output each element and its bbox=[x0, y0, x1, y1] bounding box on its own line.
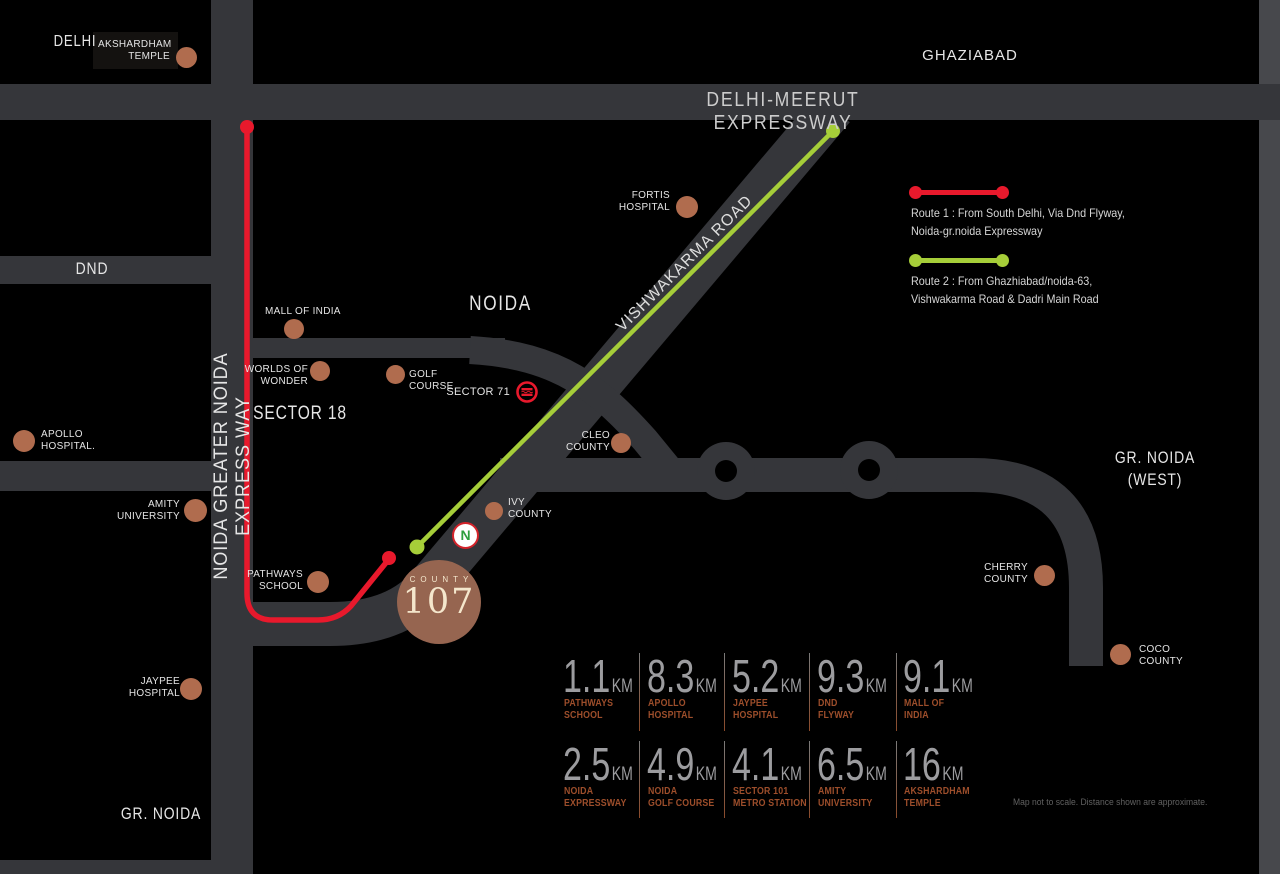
distance-noida-expressway-label: NOIDAEXPRESSWAY bbox=[564, 786, 627, 809]
area-sector18: SECTOR 18 bbox=[249, 403, 351, 425]
landmark-ivy-county: IVY COUNTY bbox=[508, 497, 552, 521]
distance-divider bbox=[896, 653, 897, 731]
distance-divider bbox=[724, 741, 725, 818]
landmark-apollo-hospital: APOLLO HOSPITAL. bbox=[41, 429, 95, 453]
distance-divider bbox=[809, 741, 810, 818]
route2-legend-cap-right bbox=[996, 254, 1009, 267]
distance-pathways: 1.1KM bbox=[563, 655, 657, 698]
landmark-cherry-county: CHERRY COUNTY bbox=[956, 562, 1028, 586]
delhi-meerut-expressway-label: DELHI-MEERUT EXPRESSWAY bbox=[651, 89, 915, 135]
map-edge-road bbox=[1259, 0, 1280, 874]
distance-apollo: 8.3KM bbox=[647, 655, 741, 698]
distance-golf-course: 4.9KM bbox=[647, 743, 741, 786]
county107-logo: COUNTY 107 bbox=[397, 560, 481, 644]
logo-number-text: 107 bbox=[397, 584, 481, 620]
landmark-amity-university: AMITY UNIVERSITY bbox=[108, 499, 180, 523]
route2-end-dot bbox=[410, 540, 425, 555]
distance-golf-course-label: NOIDAGOLF COURSE bbox=[648, 786, 714, 809]
fortis-hospital-dot bbox=[676, 196, 698, 218]
map-disclaimer: Map not to scale. Distance shown are app… bbox=[1013, 797, 1207, 807]
distance-divider bbox=[724, 653, 725, 731]
distance-metro-station-label: SECTOR 101METRO STATION bbox=[733, 786, 807, 809]
route1-legend-line bbox=[913, 190, 1005, 195]
cherry-county-dot bbox=[1034, 565, 1055, 586]
delhi-meerut-expressway-shape bbox=[0, 84, 1280, 120]
gr-noida-west-line1: GR. NOIDA bbox=[1115, 448, 1195, 467]
route2-legend-text: Route 2 : From Ghazhiabad/noida-63, Vish… bbox=[911, 272, 1099, 308]
landmark-pathways-school: PATHWAYS SCHOOL bbox=[231, 569, 303, 593]
distance-akshardham: 16KM bbox=[903, 743, 985, 786]
route1-legend-cap-left bbox=[909, 186, 922, 199]
landmark-fortis-hospital: FORTIS HOSPITAL bbox=[598, 190, 670, 214]
route1-legend-cap-right bbox=[996, 186, 1009, 199]
distance-dnd-label: DNDFLYWAY bbox=[818, 698, 854, 721]
distance-mall-label: MALL OFINDIA bbox=[904, 698, 944, 721]
pathways-school-dot bbox=[307, 571, 329, 593]
bottom-left-road bbox=[0, 860, 211, 874]
mall-of-india-dot bbox=[284, 319, 304, 339]
route2-legend-line bbox=[913, 258, 1005, 263]
distance-akshardham-label: AKSHARDHAMTEMPLE bbox=[904, 786, 970, 809]
landmark-cleo-county: CLEO COUNTY bbox=[548, 430, 610, 454]
distance-amity: 6.5KM bbox=[817, 743, 911, 786]
jaypee-hospital-dot bbox=[180, 678, 202, 700]
distance-noida-expressway: 2.5KM bbox=[563, 743, 657, 786]
route1-end-dot bbox=[382, 551, 396, 565]
route1-legend-text: Route 1 : From South Delhi, Via Dnd Flyw… bbox=[911, 204, 1125, 240]
city-noida: NOIDA bbox=[457, 292, 543, 316]
roundabout-1-center bbox=[715, 460, 737, 482]
location-map: DELHI GHAZIABAD DELHI-MEERUT EXPRESSWAY … bbox=[0, 0, 1280, 874]
city-gr-noida-west: GR. NOIDA (WEST) bbox=[1104, 447, 1206, 491]
golf-course-dot bbox=[386, 365, 405, 384]
coco-county-dot bbox=[1110, 644, 1131, 665]
amity-university-dot bbox=[184, 499, 207, 522]
route1-start-dot bbox=[240, 120, 254, 134]
area-dnd: DND bbox=[59, 259, 125, 279]
city-delhi: DELHI bbox=[46, 33, 103, 51]
gr-noida-west-line2: (WEST) bbox=[1128, 470, 1182, 489]
apollo-hospital-dot bbox=[13, 430, 35, 452]
left-cross-road bbox=[0, 461, 211, 491]
distance-amity-label: AMITYUNIVERSITY bbox=[818, 786, 873, 809]
sector71-metro-icon bbox=[515, 380, 539, 404]
route2-legend-cap-left bbox=[909, 254, 922, 267]
noida-authority-badge: N bbox=[452, 522, 479, 549]
landmark-jaypee-hospital: JAYPEE HOSPITAL bbox=[108, 676, 180, 700]
city-gr-noida: GR. NOIDA bbox=[115, 804, 207, 824]
worlds-of-wonder-dot bbox=[310, 361, 330, 381]
distance-divider bbox=[639, 741, 640, 818]
landmark-akshardham-temple: AKSHARDHAM TEMPLE bbox=[98, 39, 170, 63]
landmark-sector71: SECTOR 71 bbox=[438, 386, 510, 398]
roundabout-2-center bbox=[858, 459, 880, 481]
distance-metro-station: 4.1KM bbox=[732, 743, 826, 786]
ivy-county-dot bbox=[485, 502, 503, 520]
distance-divider bbox=[896, 741, 897, 818]
badge-n-letter: N bbox=[460, 527, 470, 543]
distance-mall: 9.1KM bbox=[903, 655, 997, 698]
cleo-county-dot bbox=[611, 433, 631, 453]
distance-apollo-label: APOLLOHOSPITAL bbox=[648, 698, 693, 721]
landmark-coco-county: COCO COUNTY bbox=[1139, 644, 1183, 668]
landmark-worlds-of-wonder: WORLDS OF WONDER bbox=[236, 364, 308, 388]
akshardham-temple-dot bbox=[176, 47, 197, 68]
distance-dnd: 9.3KM bbox=[817, 655, 911, 698]
distance-divider bbox=[639, 653, 640, 731]
distance-jaypee-label: JAYPEEHOSPITAL bbox=[733, 698, 778, 721]
landmark-mall-of-india: MALL OF INDIA bbox=[265, 306, 345, 318]
city-ghaziabad: GHAZIABAD bbox=[915, 47, 1025, 64]
distance-divider bbox=[809, 653, 810, 731]
distance-jaypee: 5.2KM bbox=[732, 655, 826, 698]
distance-pathways-label: PATHWAYSSCHOOL bbox=[564, 698, 613, 721]
